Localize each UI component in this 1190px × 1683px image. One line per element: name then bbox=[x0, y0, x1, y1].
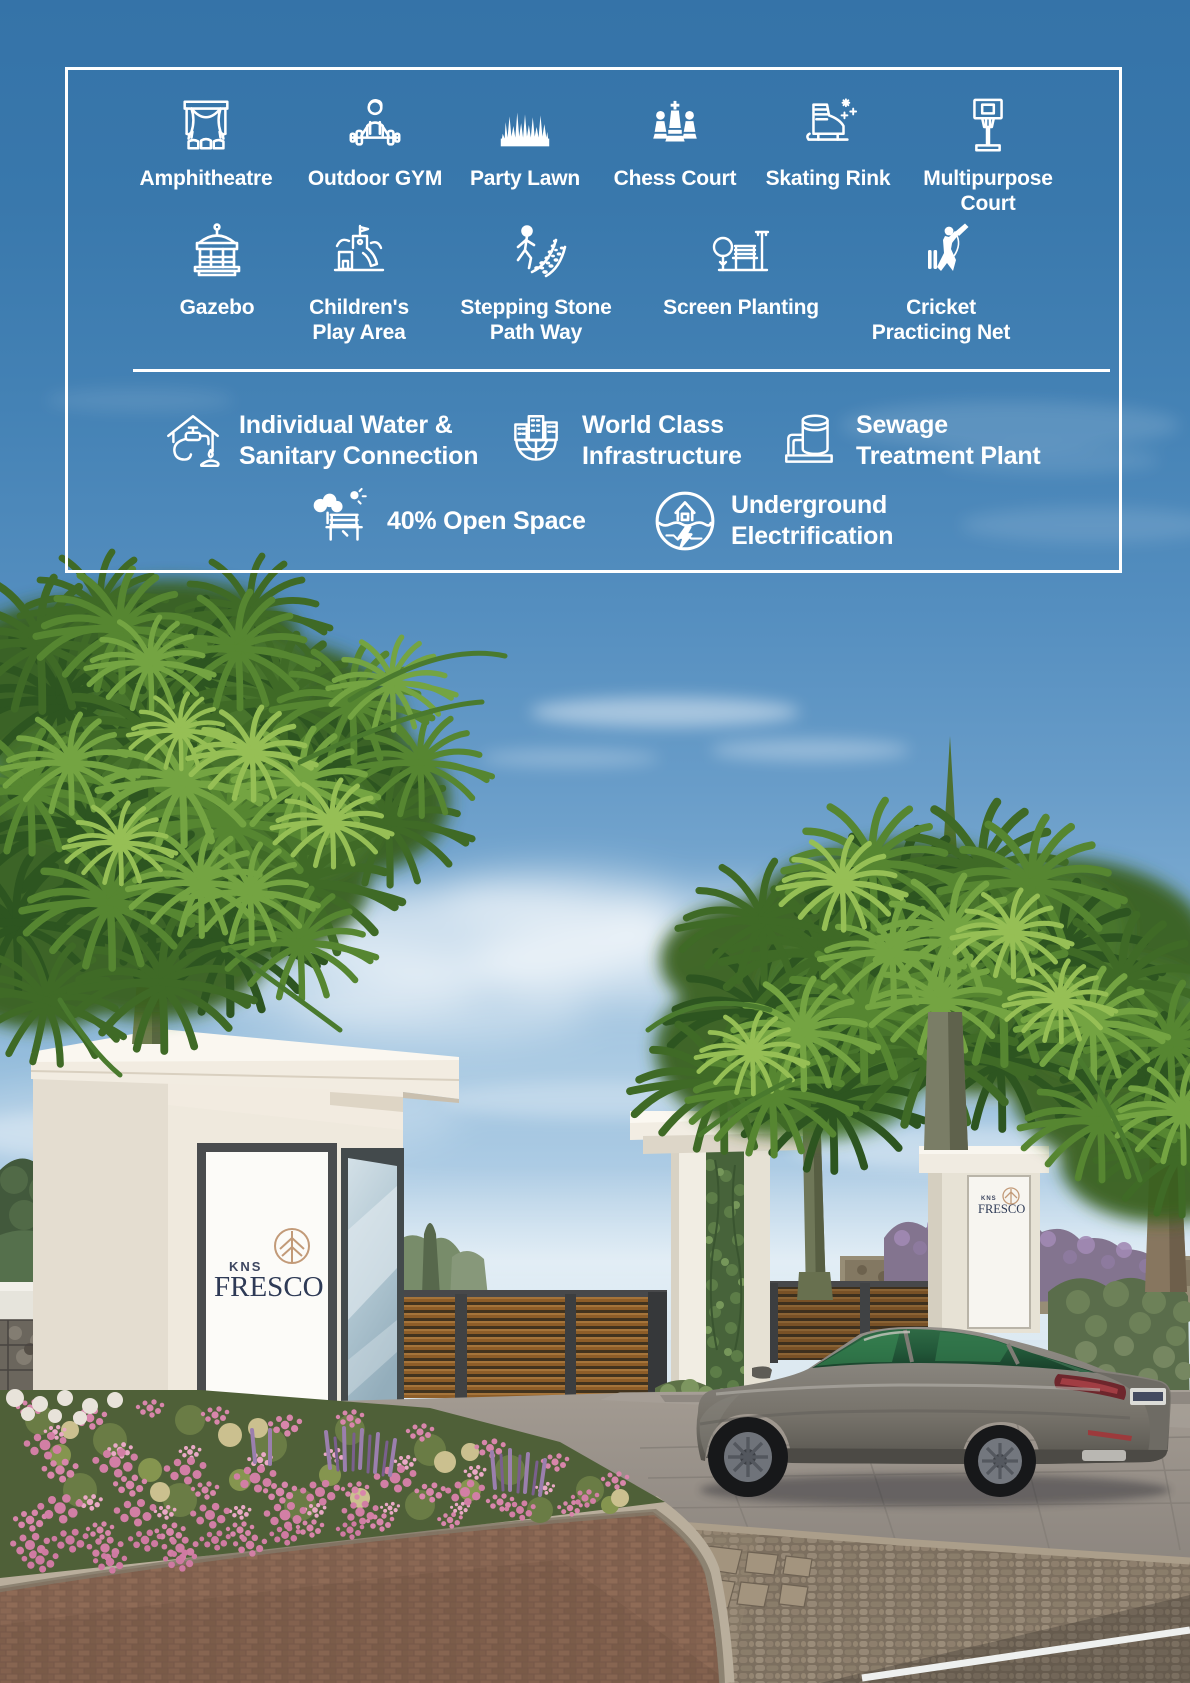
svg-text:FRESCO: FRESCO bbox=[978, 1202, 1025, 1216]
svg-text:FRESCO: FRESCO bbox=[214, 1271, 324, 1303]
